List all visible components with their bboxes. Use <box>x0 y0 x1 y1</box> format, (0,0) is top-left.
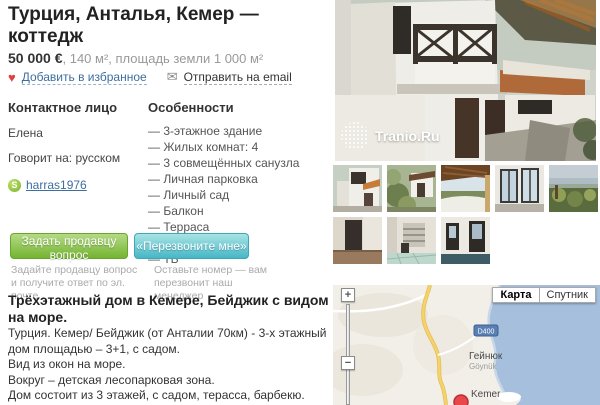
feature-item: — 3 совмещённых санузла <box>148 156 333 171</box>
send-email-link[interactable]: Отправить на email <box>184 70 292 85</box>
add-to-favorites-link[interactable]: Добавить в избранное <box>22 70 147 85</box>
zoom-in-button[interactable]: + <box>341 288 355 302</box>
road-label: D400 <box>478 329 495 336</box>
map-label-goynuk: Гейнюк <box>469 351 503 362</box>
action-links-row: ♥ Добавить в избранное ✉ Отправить на em… <box>8 69 292 85</box>
skype-link[interactable]: harras1976 <box>26 178 87 192</box>
contact-name: Елена <box>8 126 143 140</box>
description-paragraph: Вид из окон на море. <box>8 357 333 373</box>
zoom-out-button[interactable]: − <box>341 356 355 370</box>
feature-item: — Личная парковка <box>148 172 333 187</box>
gallery-thumbnail-4[interactable] <box>495 165 544 212</box>
features-header: Особенности <box>148 100 333 115</box>
feature-item: — Жилых комнат: 4 <box>148 140 333 155</box>
watermark-text: Tranio.Ru <box>375 128 440 144</box>
envelope-icon: ✉ <box>167 69 178 85</box>
description-heading: Трёхэтажный дом в Кемере, Бейджик с видо… <box>8 292 330 326</box>
main-photo[interactable]: Tranio.Ru <box>335 0 596 161</box>
price-value: 50 000 € <box>8 50 63 66</box>
skype-icon: S <box>8 179 21 192</box>
gallery-thumbnail-1[interactable] <box>333 165 382 212</box>
map-label-kemer: Kemer <box>471 389 501 400</box>
map-graphic: D400 Гейнюк Göynük Kemer <box>333 285 600 405</box>
ask-seller-button[interactable]: Задать продавцу вопрос <box>10 233 128 259</box>
tranio-logo-icon <box>340 121 370 151</box>
photo-thumbnails <box>333 165 600 264</box>
map-label-goynuk-latin: Göynük <box>469 362 498 371</box>
listing-page: Турция, Анталья, Кемер — коттедж 50 000 … <box>0 0 600 405</box>
description-paragraph: Дом состоит из 3 этажей, с садом, терасс… <box>8 388 333 404</box>
gallery-thumbnail-3[interactable] <box>441 165 490 212</box>
satellite-view-button[interactable]: Спутник <box>540 287 596 303</box>
price-details: , 140 м², площадь земли 1 000 м² <box>63 51 264 66</box>
gallery-thumbnail-6[interactable] <box>333 217 382 264</box>
map-view-button[interactable]: Карта <box>492 287 539 303</box>
location-map[interactable]: D400 Гейнюк Göynük Kemer + − Карта Спутн… <box>333 285 600 405</box>
description-paragraph: Турция. Кемер/ Бейджик (от Анталии 70км)… <box>8 326 333 357</box>
feature-item: — 3-этажное здание <box>148 124 333 139</box>
gallery-thumbnail-7[interactable] <box>387 217 436 264</box>
feature-item: — Балкон <box>148 204 333 219</box>
watermark: Tranio.Ru <box>340 121 440 151</box>
gallery-thumbnail-8[interactable] <box>441 217 490 264</box>
contact-header: Контактное лицо <box>8 100 143 115</box>
gallery-thumbnail-2[interactable] <box>387 165 436 212</box>
zoom-slider-track[interactable] <box>346 304 350 405</box>
description-paragraph: Вокруг – детская лесопарковая зона. <box>8 373 333 389</box>
action-buttons-row: Задать продавцу вопрос «Перезвоните мне» <box>10 233 249 259</box>
skype-row: S harras1976 <box>8 178 143 192</box>
gallery-thumbnail-5[interactable] <box>549 165 598 212</box>
map-type-switcher: Карта Спутник <box>492 287 596 303</box>
page-title: Турция, Анталья, Кемер — коттедж <box>8 4 303 48</box>
map-marker[interactable] <box>454 395 468 405</box>
description-text: Турция. Кемер/ Бейджик (от Анталии 70км)… <box>8 326 333 405</box>
contact-person-section: Контактное лицо Елена Говорит на: русско… <box>8 100 143 192</box>
contact-language: Говорит на: русском <box>8 151 143 165</box>
heart-icon: ♥ <box>8 70 16 85</box>
feature-item: — Личный сад <box>148 188 333 203</box>
callback-button[interactable]: «Перезвоните мне» <box>134 233 249 259</box>
listing-details-column: Турция, Анталья, Кемер — коттедж 50 000 … <box>8 0 333 405</box>
price-line: 50 000 €, 140 м², площадь земли 1 000 м² <box>8 50 263 66</box>
